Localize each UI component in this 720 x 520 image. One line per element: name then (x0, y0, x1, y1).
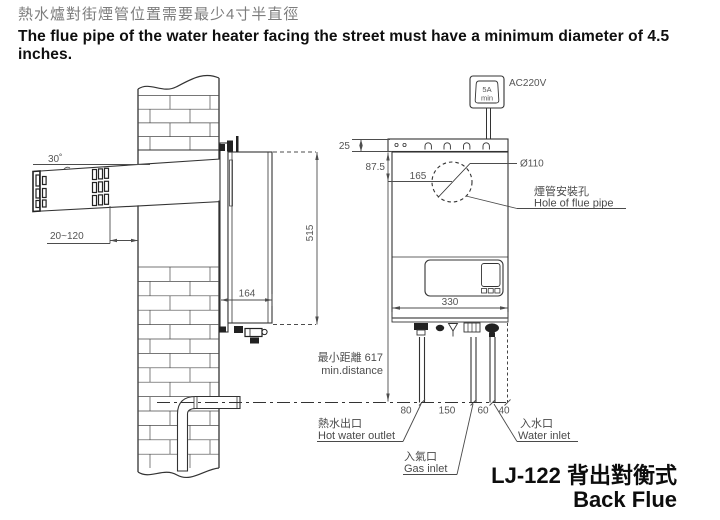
vent-slot (43, 189, 47, 198)
water-heater-side (219, 136, 272, 344)
min-distance-zh: 最小距離 617 (318, 350, 383, 364)
dim-60: 60 (477, 406, 489, 417)
vent-slot (36, 201, 40, 208)
vent-slot (43, 200, 47, 207)
dim-flue-angle: 30˚ (48, 153, 62, 165)
dim-width: 330 (442, 297, 459, 308)
dim-flue-dia: Ø110 (520, 159, 544, 170)
hot-water-label-zh: 熱水出口 (318, 416, 362, 430)
vent-slot (105, 168, 109, 178)
voltage-label: AC220V (509, 78, 547, 89)
dim-80: 80 (400, 406, 412, 417)
side-view: 30˚ 20~120 164 515 (33, 75, 319, 477)
vent-slot (105, 194, 109, 204)
drain-pipe-elbow (178, 397, 241, 472)
page-header: 熱水爐對街煙管位置需要最少4寸半直徑 The flue pipe of the … (18, 5, 720, 64)
dim-flue-from-top: 87.5 (366, 162, 386, 173)
water-label-zh: 入水口 (520, 417, 553, 430)
flue-hole-label-zh: 煙管安裝孔 (534, 184, 589, 198)
model-line-zh: LJ-122 背出對衡式 (491, 463, 677, 488)
hot-water-label-en: Hot water outlet (318, 430, 395, 442)
dim-150: 150 (439, 406, 456, 417)
flue-hole-label-en: Hole of flue pipe (534, 198, 614, 210)
vent-slot (36, 189, 40, 198)
gas-label-en: Gas inlet (404, 463, 447, 475)
min-distance-en: min.distance (321, 365, 383, 377)
socket-min-label: min (481, 94, 493, 103)
vent-slot (99, 182, 103, 192)
dim-top-gap: 25 (339, 141, 351, 152)
vent-slot (36, 175, 40, 186)
mount-bracket-top (219, 136, 239, 152)
title-chinese: 熱水爐對街煙管位置需要最少4寸半直徑 (18, 5, 720, 24)
vent-slot (99, 195, 103, 205)
vent-slot (93, 196, 97, 206)
title-english: The flue pipe of the water heater facing… (18, 28, 720, 64)
model-line-en: Back Flue (573, 487, 677, 512)
front-view: 5A min AC220V (317, 76, 626, 475)
vent-slot (99, 169, 103, 179)
vent-slot (43, 177, 47, 185)
dim-flue-from-left: 165 (410, 171, 427, 182)
front-bottom-fittings (414, 323, 499, 337)
dim-depth: 164 (239, 289, 256, 300)
vent-slot (93, 170, 97, 180)
flue-pipe-side (33, 159, 228, 212)
vent-slot (93, 183, 97, 193)
mount-bracket-strip (388, 139, 508, 152)
water-label-en: Water inlet (518, 430, 570, 442)
dim-protrusion: 20~120 (50, 231, 84, 242)
vent-slot (105, 181, 109, 191)
model-name: LJ-122 背出對衡式 Back Flue (491, 463, 677, 512)
gas-label-zh: 入氣口 (404, 449, 437, 463)
installation-diagram: 30˚ 20~120 164 515 5A min AC220V (0, 0, 720, 520)
dim-height: 515 (305, 224, 316, 241)
